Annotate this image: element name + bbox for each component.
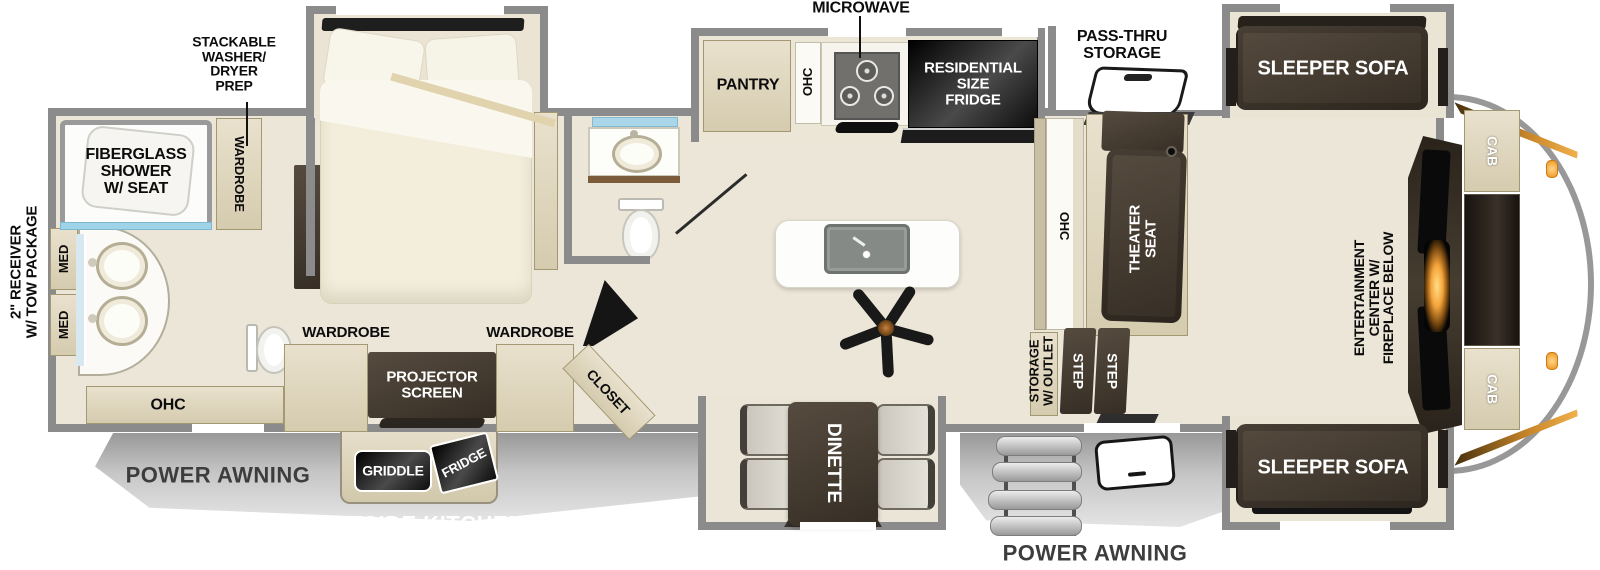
pass-thru-label: PASS-THRU STORAGE — [1077, 29, 1167, 63]
tow-package-label: 2" RECEIVER W/ TOW PACKAGE — [8, 206, 40, 338]
microwave-pointer-line — [859, 16, 861, 58]
pass-thru-hatch-handle — [1123, 74, 1152, 81]
sofa-bottom-window-left — [1226, 430, 1236, 488]
dinette-chair-3 — [876, 404, 935, 456]
living-ohc-label: OHC — [1057, 212, 1071, 240]
entry-step-4 — [990, 516, 1082, 536]
kitchen-slide-window-1 — [828, 28, 906, 37]
mid-bath-backsplash — [592, 117, 678, 127]
entry-threshold — [1084, 423, 1180, 433]
bed-media-bar — [322, 18, 525, 31]
med-lower-label: MED — [57, 311, 71, 339]
fan-hub — [878, 320, 894, 336]
rv-floor-plan: MICROWAVE PANTRY OHC RESIDENTIAL SIZE FR… — [0, 0, 1600, 570]
fridge-base — [901, 128, 1044, 143]
fireplace — [1424, 240, 1450, 332]
rear-sink-faucet-upper — [88, 258, 97, 267]
bedroom-left-wall — [306, 118, 315, 276]
wardrobe-left-label: WARDROBE — [302, 325, 390, 341]
storage-outlet-label: STORAGE W/ OUTLET — [1027, 336, 1054, 406]
cap-light-top — [1546, 160, 1558, 178]
rear-sink-faucet-lower — [88, 314, 97, 323]
pantry-label: PANTRY — [717, 78, 780, 95]
cab-lower-label: CAB — [1485, 374, 1500, 404]
sofa-top-window-right — [1438, 48, 1448, 106]
theater-seat-cupholder — [1166, 146, 1177, 157]
front-awning-label: POWER AWNING — [1003, 541, 1188, 564]
rear-vanity-mirror — [76, 234, 86, 366]
tv-panel-top — [1417, 149, 1450, 254]
microwave-label: MICROWAVE — [812, 1, 909, 18]
outside-kitchen-label: OUTSIDE KITCHEN — [315, 512, 524, 535]
island-faucet — [862, 250, 871, 259]
projector-screen-label: PROJECTOR SCREEN — [386, 369, 477, 401]
oven-front — [834, 122, 900, 133]
dinette-slide-window — [800, 522, 876, 530]
living-ohc-wall — [1034, 118, 1046, 330]
kitchen-slide-window-2 — [1002, 28, 1038, 37]
sleeper-sofa-bottom-label: SLEEPER SOFA — [1258, 458, 1409, 479]
wardrobe-cabinet-right — [496, 344, 574, 432]
griddle-label: GRIDDLE — [362, 464, 424, 479]
mid-bath-vanity-base — [588, 176, 680, 183]
sofa-bottom-window-right — [1438, 430, 1448, 488]
shower-glass-door — [60, 222, 212, 230]
entry-step-1 — [996, 436, 1082, 456]
burner-left — [840, 86, 860, 106]
dinette-chair-4 — [876, 458, 935, 510]
entertainment-center-label: ENTERTAINMENT CENTER W/ FIREPLACE BELOW — [1352, 232, 1396, 364]
bed-slide-window — [336, 6, 504, 15]
sofa-top-window — [1280, 4, 1390, 13]
rear-wall-opening — [192, 424, 264, 433]
entry-door — [1094, 435, 1176, 492]
fiberglass-shower-label: FIBERGLASS SHOWER W/ SEAT — [85, 147, 186, 197]
island-sink — [824, 224, 910, 274]
step-2-label: STEP — [1105, 353, 1120, 389]
sleeper-sofa-top-label: SLEEPER SOFA — [1258, 59, 1409, 80]
theater-seat-label: THEATER SEAT — [1127, 205, 1159, 273]
mid-bath-bottom-wall — [564, 256, 650, 264]
rear-sink-lower — [96, 296, 148, 346]
step-1-label: STEP — [1071, 353, 1086, 389]
kitchen-ohc-label: OHC — [801, 68, 815, 96]
pass-thru-left-wall — [1048, 26, 1056, 112]
bedroom-nightstand — [534, 112, 558, 270]
cab-stack-middle — [1464, 194, 1520, 346]
rear-bath-ohc-label: OHC — [151, 398, 186, 415]
sofa-bottom-window — [1280, 521, 1390, 530]
mid-bath-sink — [612, 135, 662, 173]
med-upper-label: MED — [57, 245, 71, 273]
washer-dryer-prep-label: STACKABLE WASHER/ DRYER PREP — [192, 35, 276, 94]
rear-bath-wardrobe-label: WARDROBE — [232, 136, 246, 212]
cap-light-bottom — [1546, 352, 1558, 370]
fan-blade-2 — [881, 331, 894, 378]
burner-top — [856, 60, 878, 82]
mid-toilet-bowl — [622, 209, 660, 261]
entry-step-2 — [992, 462, 1082, 482]
mid-bath-faucet — [630, 130, 638, 138]
wardrobe-right-label: WARDROBE — [486, 325, 574, 341]
burner-right — [874, 86, 894, 106]
wardrobe-cabinet-left — [284, 344, 368, 432]
mid-bath-left-wall — [564, 116, 572, 264]
entry-step-3 — [988, 490, 1082, 510]
washer-prep-pointer-line — [246, 102, 248, 146]
cab-upper-label: CAB — [1485, 136, 1500, 166]
projector-shelf — [378, 418, 486, 428]
rear-awning-label: POWER AWNING — [126, 463, 311, 486]
sofa-top-window-left — [1226, 48, 1236, 106]
dinette-label: DINETTE — [823, 423, 843, 503]
rear-sink-upper — [96, 242, 148, 290]
residential-fridge-label: RESIDENTIAL SIZE FRIDGE — [924, 60, 1022, 107]
